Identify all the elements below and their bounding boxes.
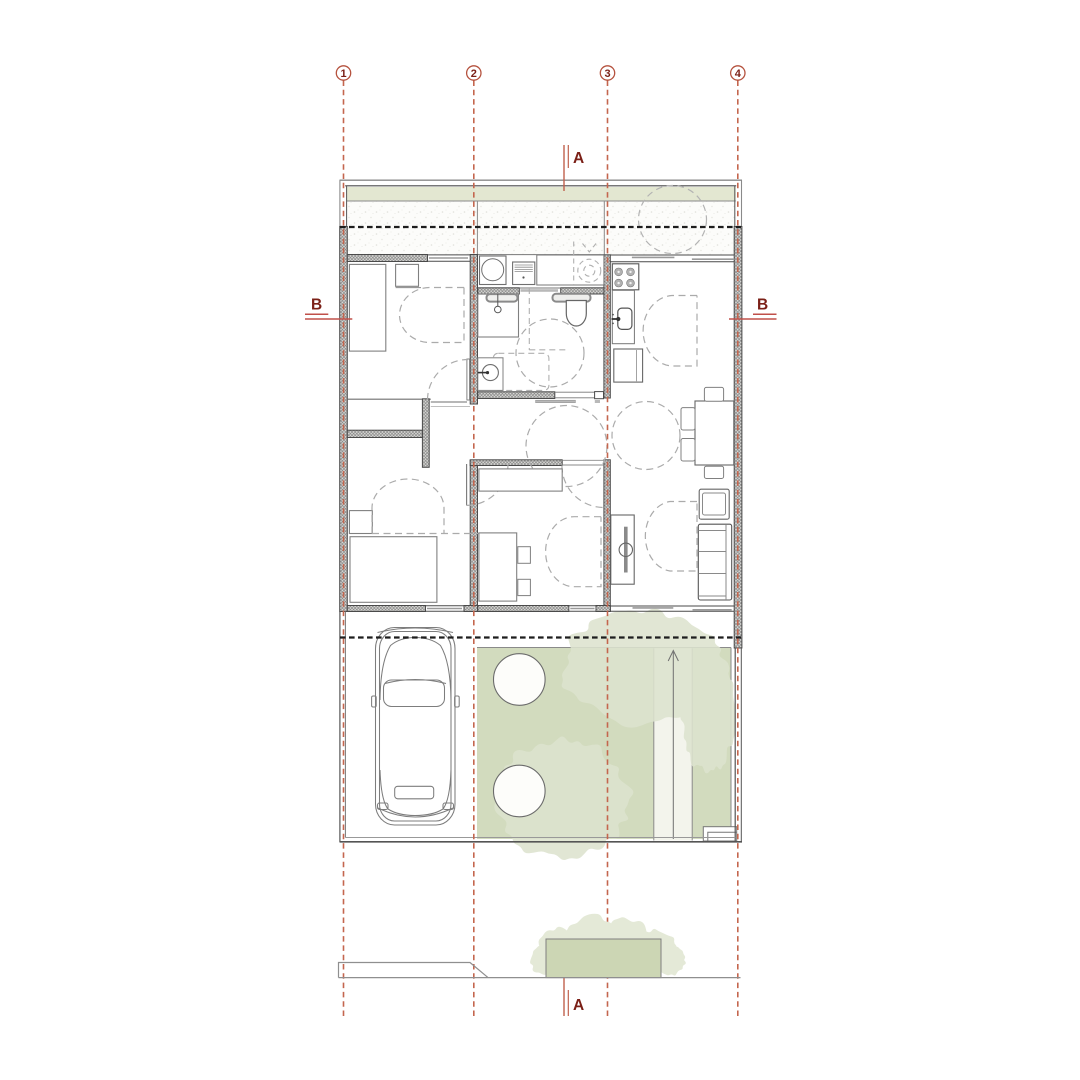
svg-text:3: 3 (604, 68, 610, 80)
svg-text:4: 4 (735, 68, 742, 80)
svg-text:A: A (573, 997, 584, 1014)
svg-text:B: B (757, 297, 768, 314)
svg-text:B: B (311, 297, 322, 314)
svg-text:A: A (573, 150, 584, 167)
svg-text:1: 1 (340, 68, 346, 80)
svg-text:2: 2 (471, 68, 477, 80)
